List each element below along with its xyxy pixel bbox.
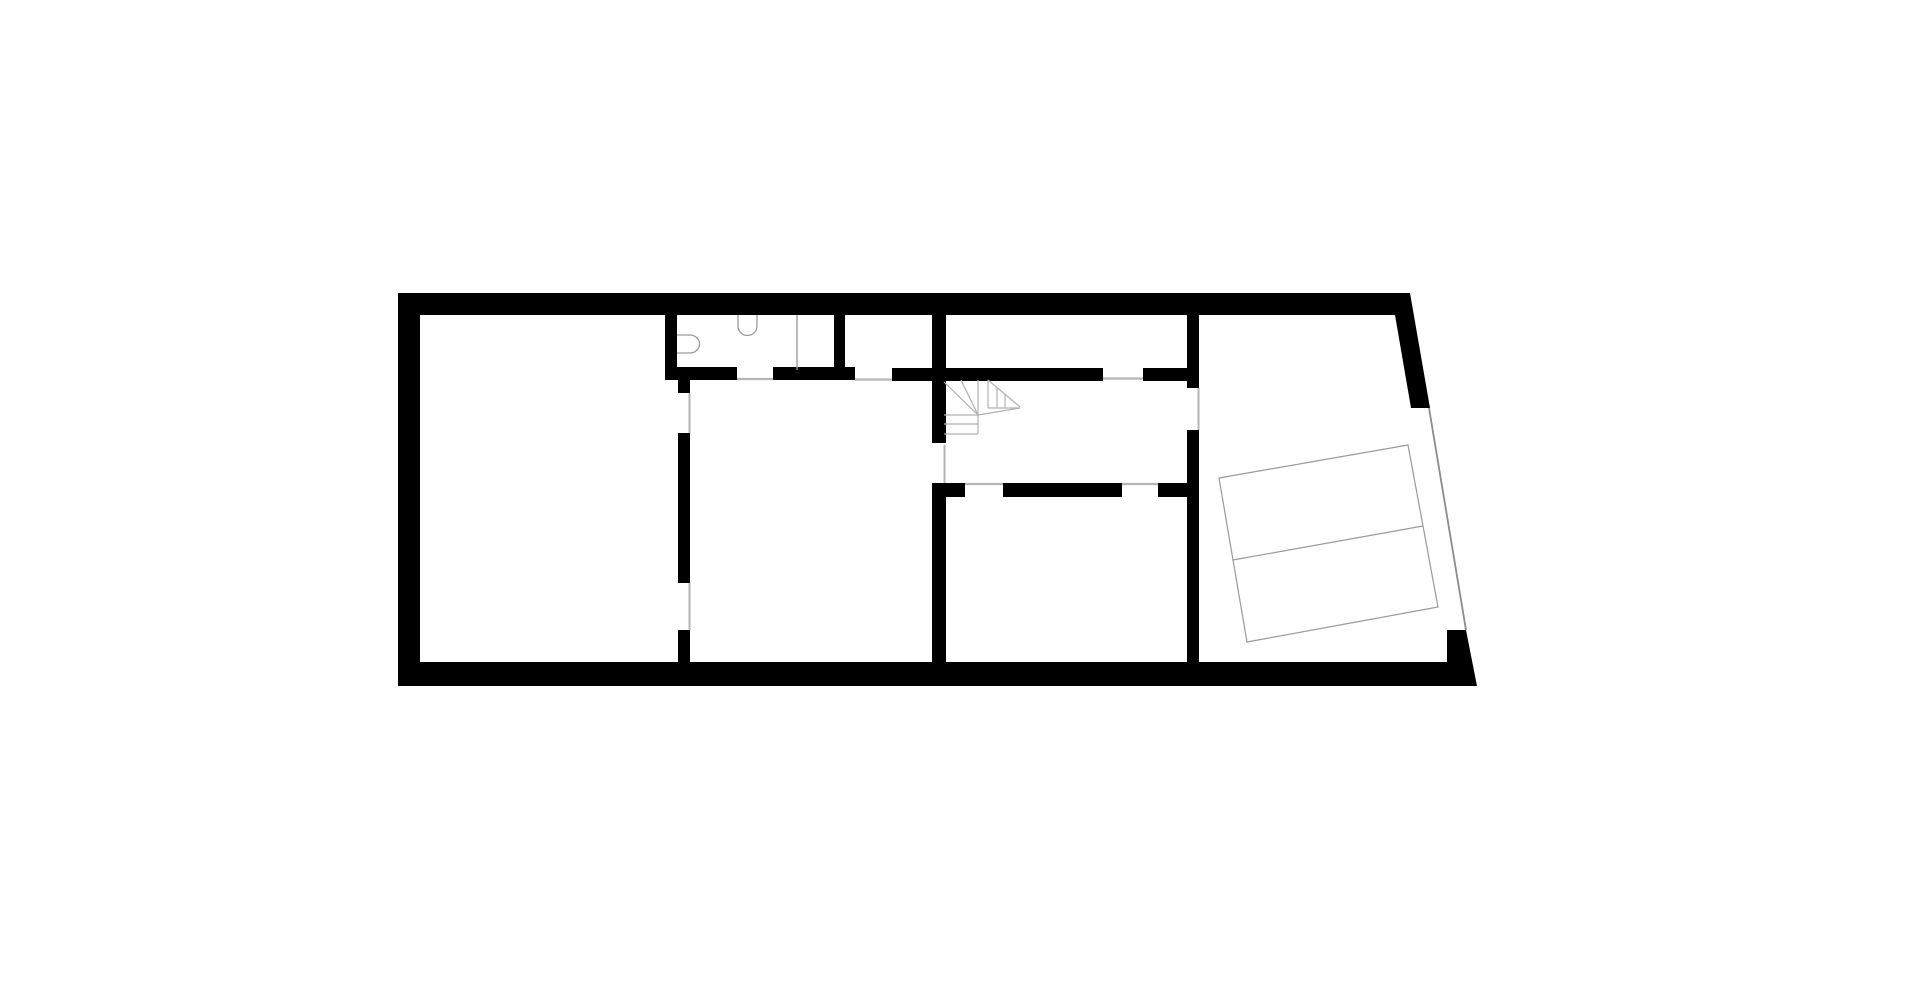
- living-room-east-wall-stub: [678, 380, 690, 393]
- stair-hall-west-wall-upper: [932, 315, 946, 443]
- parking-spaces-group: [1219, 445, 1438, 642]
- hall-south-wall-stub-right: [1158, 483, 1199, 497]
- living-room-east-wall-bottom: [678, 630, 690, 662]
- stair-winder-edge: [944, 382, 978, 415]
- left-exterior-wall: [398, 293, 420, 686]
- right-slanted-exterior-wall: [1395, 293, 1430, 408]
- floor-plan-page: [0, 0, 1920, 984]
- openings-group: [690, 315, 1467, 630]
- walls-group: [398, 293, 1477, 686]
- storage-room-left-wall: [834, 315, 845, 368]
- living-room-east-wall-mid: [678, 433, 690, 583]
- bathroom-fixtures-group: [677, 315, 757, 353]
- garage-west-wall-upper: [1187, 315, 1199, 388]
- stairs-group: [944, 380, 1020, 434]
- floor-plan-drawing: [0, 0, 1920, 984]
- hall-south-wall-stub-left: [932, 483, 965, 497]
- bathroom-left-wall: [665, 315, 677, 367]
- parking-area-divider: [1233, 526, 1423, 560]
- stair-hall-west-wall-lower: [932, 483, 946, 662]
- stair-winder-tread-1: [961, 380, 978, 415]
- top-exterior-wall: [398, 293, 1410, 315]
- corridor-wall-segment-b: [773, 367, 855, 380]
- sink: [738, 315, 757, 336]
- stair-upper-hyp: [988, 380, 1020, 407]
- hall-south-wall-bar: [1003, 483, 1122, 497]
- toilet: [677, 335, 700, 353]
- corridor-wall-segment-a: [665, 367, 737, 380]
- garage-west-wall-lower: [1187, 430, 1199, 662]
- corridor-wall-segment-c: [892, 368, 1103, 381]
- stair-pivot-edge: [978, 408, 1020, 415]
- garage-gate-opening-line: [1429, 408, 1466, 630]
